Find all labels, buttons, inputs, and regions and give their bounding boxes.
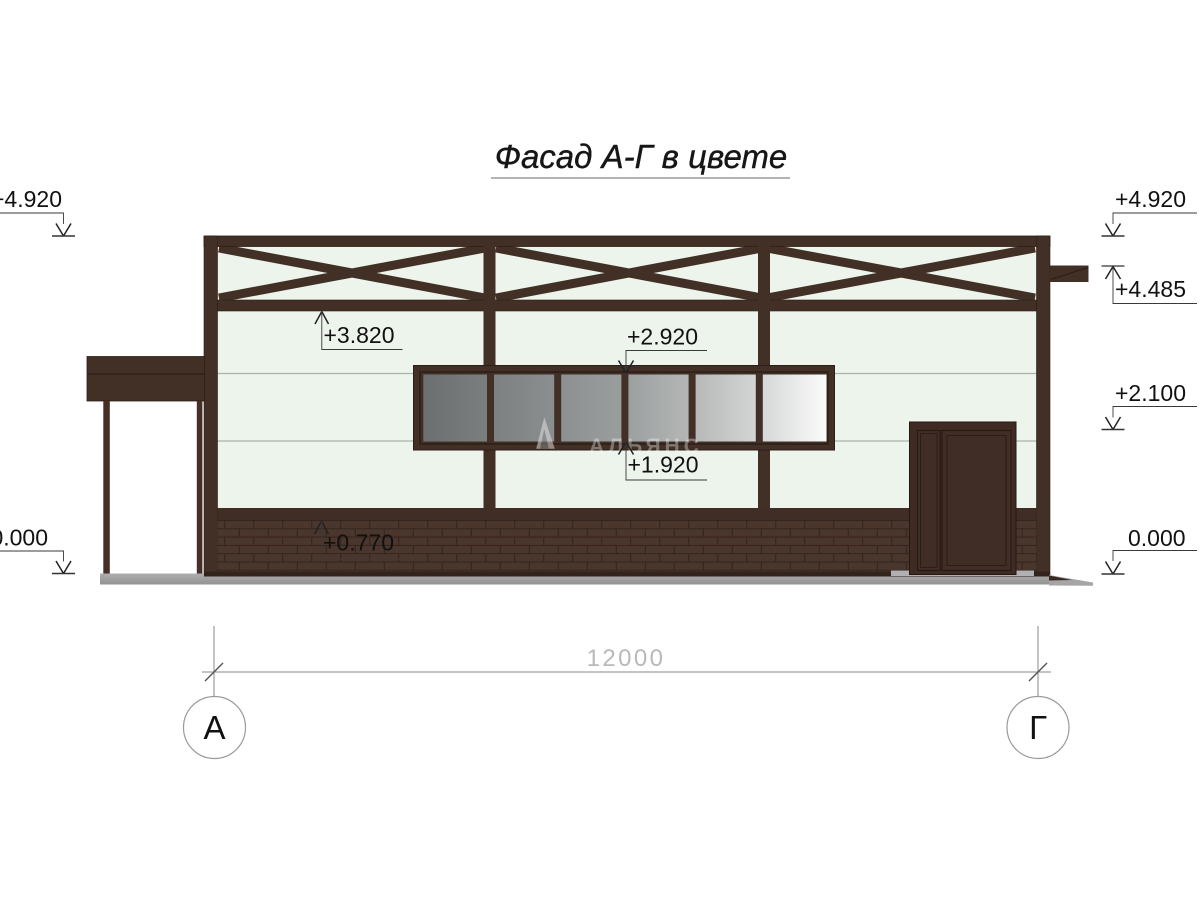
svg-text:А: А [203, 709, 225, 746]
svg-text:+0.770: +0.770 [323, 530, 394, 556]
svg-text:0.000: 0.000 [0, 525, 48, 551]
svg-text:Г: Г [1029, 709, 1047, 746]
svg-text:+4.920: +4.920 [1115, 186, 1186, 212]
svg-text:Фасад А-Г в цвете: Фасад А-Г в цвете [495, 138, 788, 175]
svg-text:+2.100: +2.100 [1115, 380, 1186, 406]
svg-text:+3.820: +3.820 [324, 322, 395, 348]
svg-text:+4.485: +4.485 [1115, 276, 1186, 302]
svg-text:+4.920: +4.920 [0, 186, 62, 212]
svg-text:0.000: 0.000 [1128, 525, 1186, 551]
svg-text:+1.920: +1.920 [628, 452, 699, 478]
svg-text:12000: 12000 [587, 645, 666, 672]
svg-text:+2.920: +2.920 [627, 324, 698, 350]
